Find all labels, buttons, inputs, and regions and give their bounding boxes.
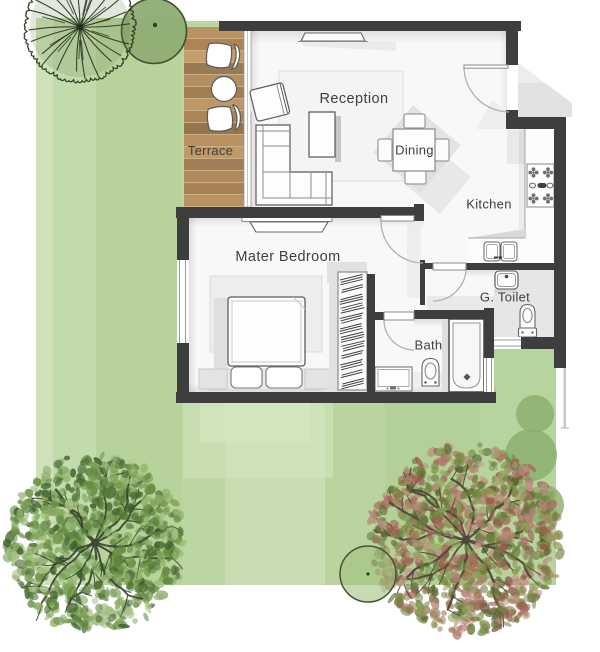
svg-text:Mater Bedroom: Mater Bedroom (235, 249, 340, 265)
svg-text:Terrace: Terrace (188, 143, 233, 158)
svg-text:G. Toilet: G. Toilet (480, 290, 530, 305)
svg-text:Dining: Dining (395, 143, 434, 158)
svg-text:Kitchen: Kitchen (466, 197, 511, 212)
svg-text:Reception: Reception (320, 91, 389, 107)
svg-text:Bath: Bath (415, 338, 443, 353)
